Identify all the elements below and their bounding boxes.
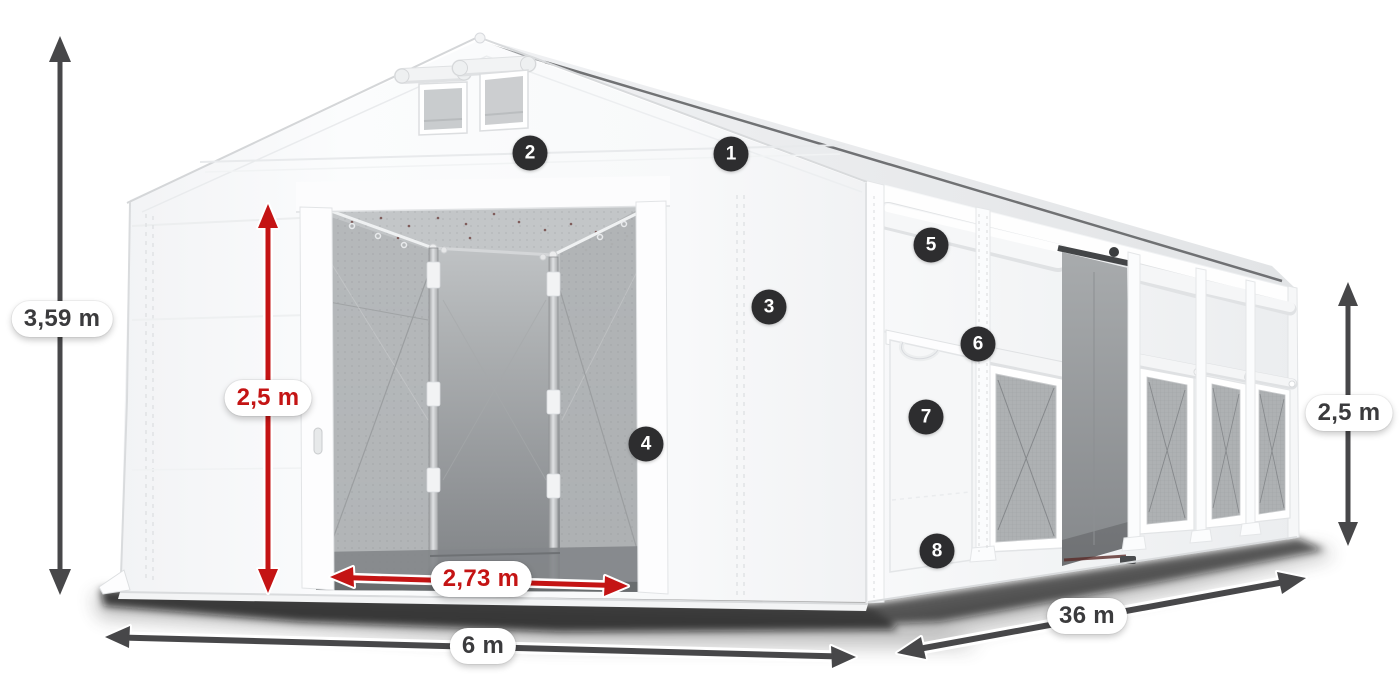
door-handle [314,428,322,454]
entrance-jamb-right [636,201,668,594]
feature-marker-3[interactable]: 3 [752,290,787,325]
dimension-label-side-height: 2,5 m [1306,395,1393,431]
feature-marker-5[interactable]: 5 [914,228,949,263]
feature-marker-6[interactable]: 6 [961,327,996,362]
side-window-1 [977,349,1075,552]
feature-marker-7[interactable]: 7 [909,400,944,435]
feature-marker-1[interactable]: 1 [714,137,749,172]
side-window-2 [1132,356,1202,534]
dimension-label-tent-width: 6 m [450,628,516,664]
tent-render [0,0,1400,700]
feature-marker-2[interactable]: 2 [513,136,548,171]
feature-marker-4[interactable]: 4 [629,427,664,462]
feature-marker-8[interactable]: 8 [920,534,955,569]
front-entrance-interior [314,203,650,592]
tent-dimensions-diagram: 1 2 3 4 5 6 7 8 3,59 m 2,5 m 2,73 m 6 m … [0,0,1400,700]
dimension-label-door-height: 2,5 m [225,380,312,416]
apex-finial [475,33,485,43]
side-door-opening [1058,247,1136,566]
dimension-label-tent-length: 36 m [1047,598,1127,634]
dimension-label-total-height: 3,59 m [12,301,113,337]
dimension-label-door-width: 2,73 m [431,561,532,597]
